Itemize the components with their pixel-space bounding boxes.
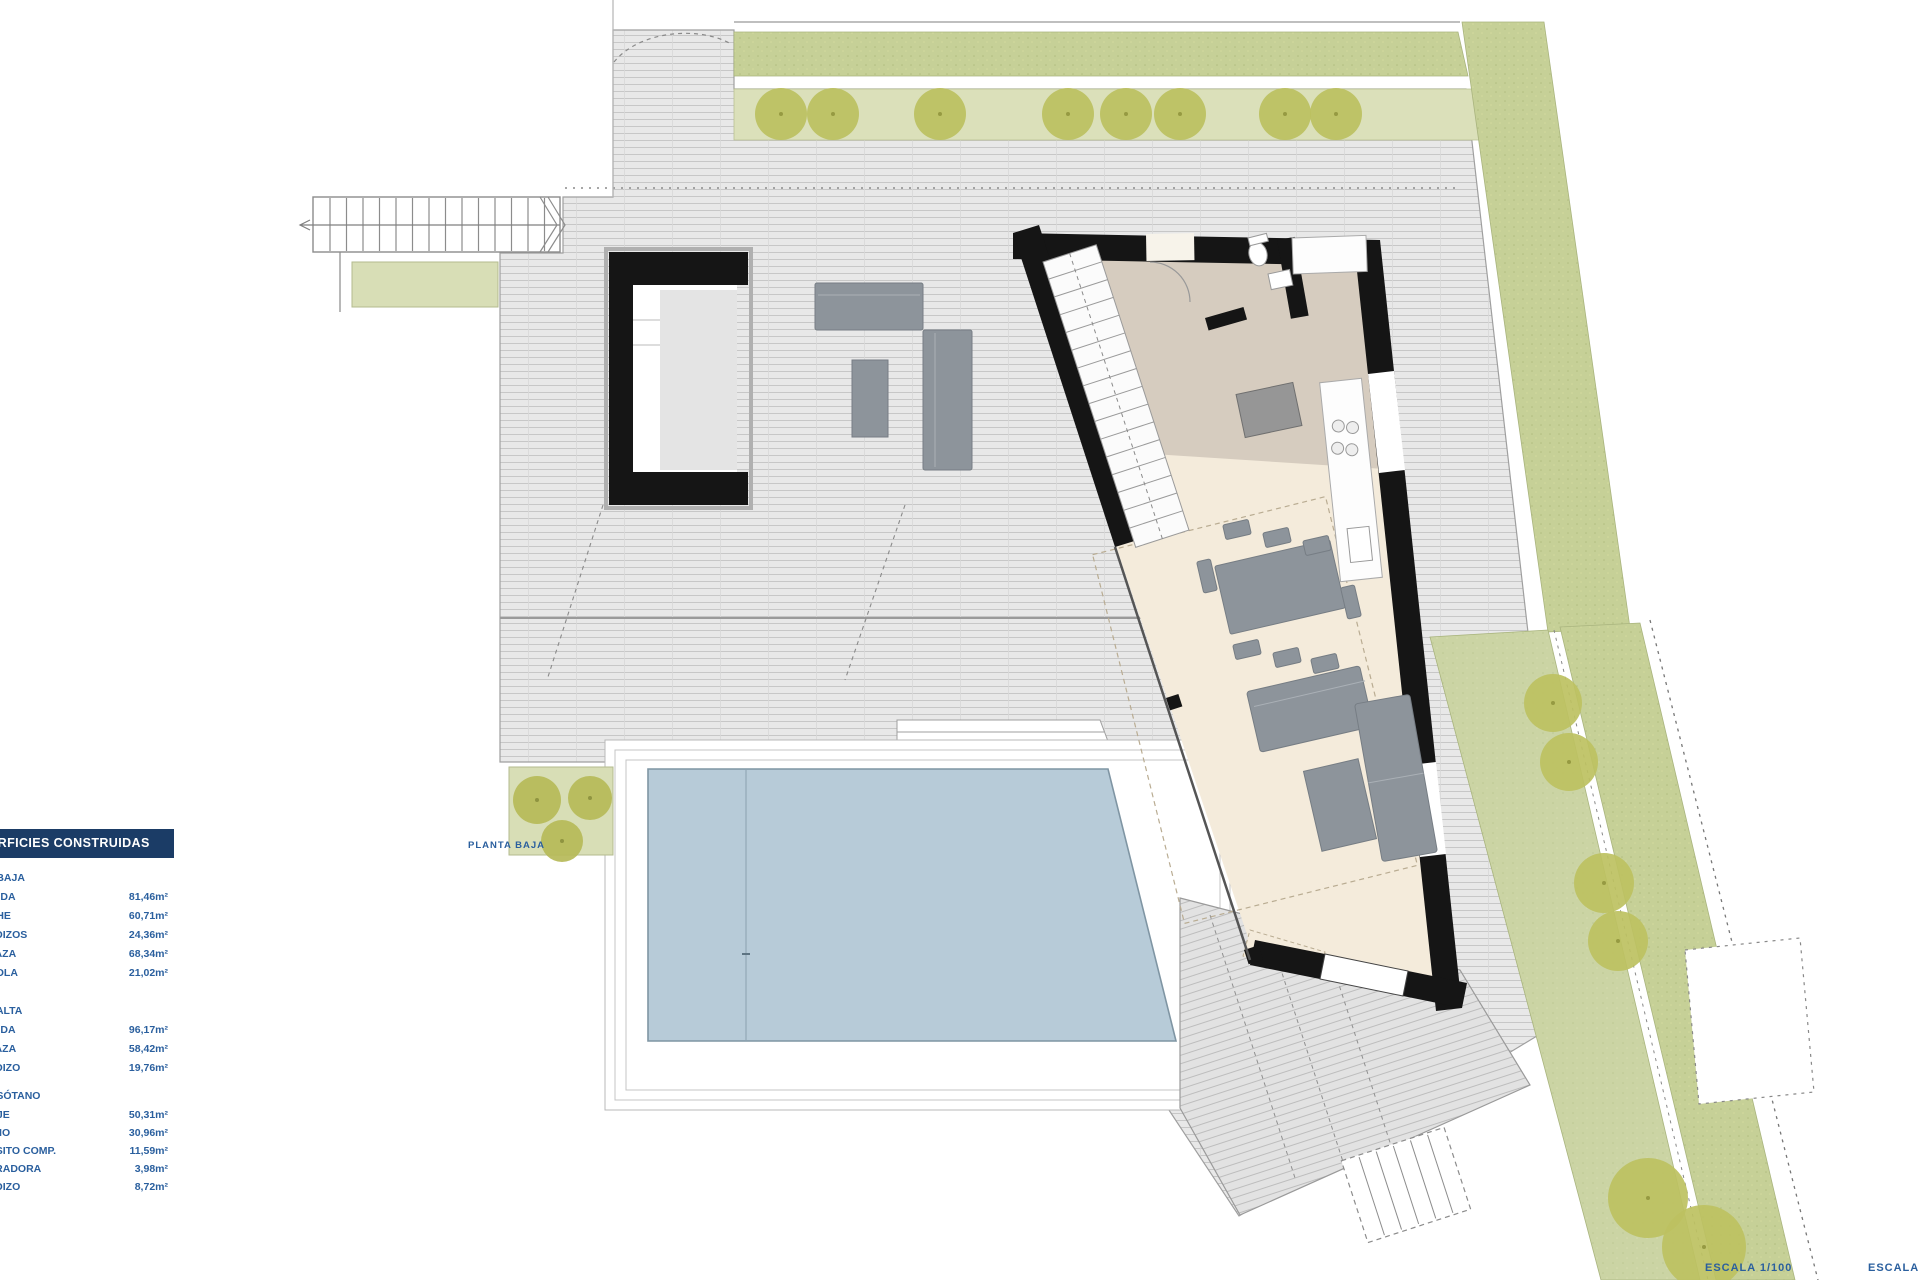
swimming-pool bbox=[648, 769, 1176, 1041]
legend-row-value: 58,42m² bbox=[62, 1043, 168, 1055]
floor-label: PLANTA BAJA bbox=[468, 840, 545, 851]
legend-row-label: DEPÓSITO COMP. bbox=[0, 1145, 56, 1157]
legend-row-value: 11,59m² bbox=[62, 1145, 168, 1157]
tree-icon bbox=[1310, 88, 1362, 140]
tree-icon bbox=[1574, 853, 1634, 913]
planter-strip-left bbox=[352, 262, 498, 307]
tree-icon bbox=[1524, 674, 1582, 732]
boundary-notch bbox=[1685, 938, 1814, 1104]
legend-row-label: GARAJE bbox=[0, 1109, 10, 1121]
floorplan-page: SUPERFICIES CONSTRUIDAS PLANTA BAJAVIVIE… bbox=[0, 0, 1920, 1280]
legend-row-value: 21,02m² bbox=[62, 967, 168, 979]
legend-row-value: 3,98m² bbox=[62, 1163, 168, 1175]
tree-icon bbox=[1100, 88, 1152, 140]
legend-row-value: 19,76m² bbox=[62, 1062, 168, 1074]
legend-row-label: VIVIENDA bbox=[0, 1024, 16, 1036]
tree-icon bbox=[1042, 88, 1094, 140]
legend-row-value: 30,96m² bbox=[62, 1127, 168, 1139]
outdoor-side-table bbox=[852, 360, 888, 437]
legend-row-value: 81,46m² bbox=[62, 891, 168, 903]
outdoor-sofa-side bbox=[923, 330, 972, 470]
tree-icon bbox=[1259, 88, 1311, 140]
tree-icon bbox=[914, 88, 966, 140]
tree-icon bbox=[1540, 733, 1598, 791]
tree-icon bbox=[807, 88, 859, 140]
areas-legend: SUPERFICIES CONSTRUIDAS PLANTA BAJAVIVIE… bbox=[0, 829, 174, 1209]
lounge-interior bbox=[660, 290, 737, 470]
pool-area bbox=[605, 740, 1240, 1110]
legend-row-label: PORCHE bbox=[0, 910, 11, 922]
legend-row-value: 96,17m² bbox=[62, 1024, 168, 1036]
legend-title: SUPERFICIES CONSTRUIDAS bbox=[0, 836, 150, 850]
legend-row-label: DEPURADORA bbox=[0, 1163, 41, 1175]
grass-strip-top bbox=[734, 32, 1468, 76]
legend-row-value: 68,34m² bbox=[62, 948, 168, 960]
legend-row-value: 60,71m² bbox=[62, 910, 168, 922]
tree-icon bbox=[1588, 911, 1648, 971]
scale-label: ESCALA 1/100 bbox=[1705, 1262, 1792, 1274]
tree-icon bbox=[568, 776, 612, 820]
legend-row-label: TERRAZA bbox=[0, 948, 16, 960]
scale-label-right: ESCALA GRÁFICA bbox=[1868, 1262, 1920, 1274]
legend-row-value: 24,36m² bbox=[62, 929, 168, 941]
legend-section-header: PLANTA BAJA bbox=[0, 872, 25, 884]
legend-row-label: TERRAZA bbox=[0, 1043, 16, 1055]
legend-row-label: VOLADIZO bbox=[0, 1062, 20, 1074]
legend-row-label: VOLADIZO bbox=[0, 1181, 20, 1193]
legend-title-bar: SUPERFICIES CONSTRUIDAS bbox=[0, 829, 174, 858]
tree-row-icons bbox=[755, 88, 1362, 140]
legend-row-label: PÉRGOLA bbox=[0, 967, 18, 979]
legend-row-label: SÓTANO bbox=[0, 1127, 10, 1139]
legend-row-label: VOLADIZOS bbox=[0, 929, 27, 941]
legend-row-label: VIVIENDA bbox=[0, 891, 16, 903]
tree-icon bbox=[1154, 88, 1206, 140]
tree-icon bbox=[513, 776, 561, 824]
legend-row-value: 8,72m² bbox=[62, 1181, 168, 1193]
site-staircase bbox=[300, 197, 565, 252]
tree-icon bbox=[541, 820, 583, 862]
legend-section-header: PLANTA ALTA bbox=[0, 1005, 22, 1017]
outdoor-sofa-top bbox=[815, 283, 923, 330]
legend-row-value: 50,31m² bbox=[62, 1109, 168, 1121]
floorplan-drawing bbox=[0, 0, 1920, 1280]
west-lounge-room bbox=[606, 249, 751, 508]
legend-section-header: PLANTA SÓTANO bbox=[0, 1090, 40, 1102]
tree-icon bbox=[755, 88, 807, 140]
